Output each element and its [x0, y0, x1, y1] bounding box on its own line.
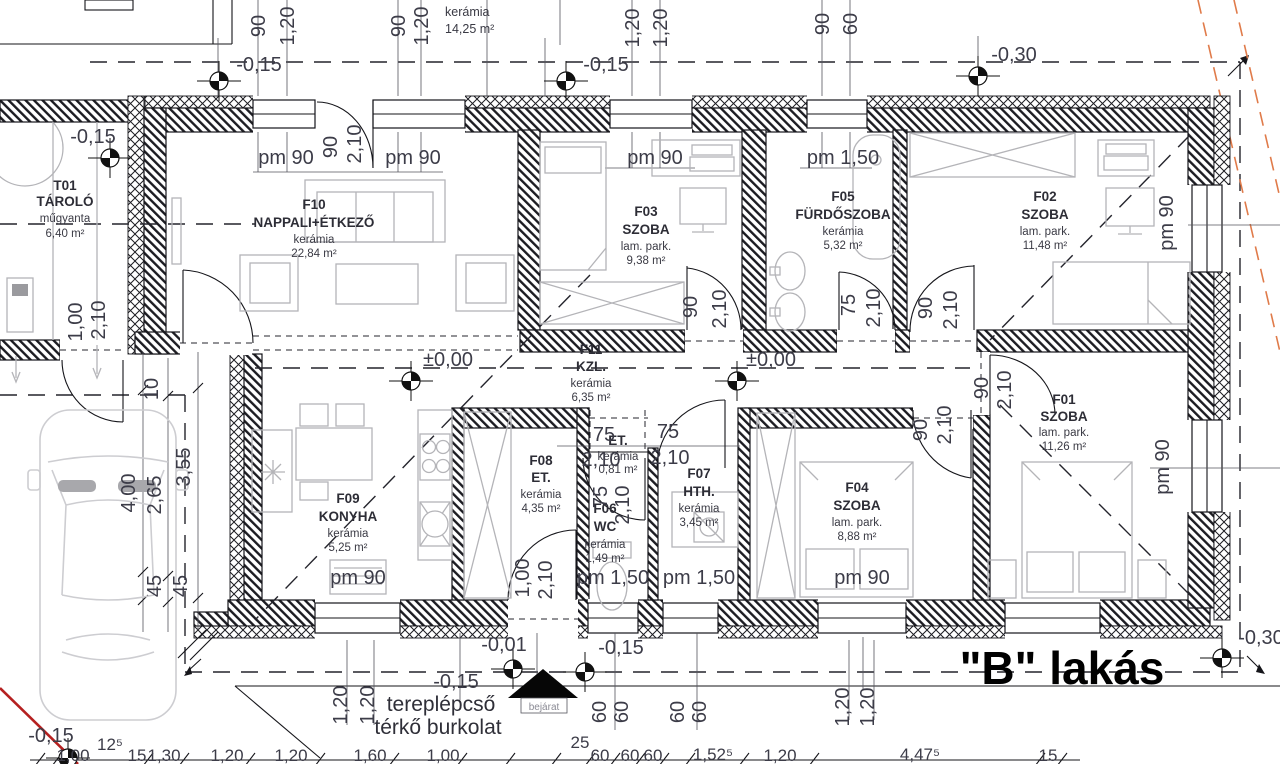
dimension-value: 60: [689, 701, 711, 723]
room-id: F01: [1052, 392, 1076, 407]
window-living-left: [253, 100, 315, 128]
dimension-value: 60: [840, 13, 862, 35]
door-taroló: [62, 360, 123, 422]
room-id: F10: [302, 197, 325, 212]
dimension-value: 1,20: [832, 688, 854, 727]
sill-label: pm 1,50: [807, 147, 879, 169]
door-height: 2,10: [994, 371, 1016, 410]
chain-value: 4,47⁵: [900, 745, 940, 764]
room-area: 11,48 m²: [1023, 240, 1068, 252]
window-living-right: [373, 100, 465, 128]
sill-label: pm 1,50: [577, 567, 649, 589]
door-width: 1,00: [65, 303, 87, 342]
room-name: NAPPALI+ÉTKEZŐ: [254, 215, 375, 230]
bed-f03: [540, 142, 606, 270]
bottom-dimension-chain: 1,00 12⁵ 15 1,30 1,20 1,20 1,60 1,00 25 …: [56, 733, 1057, 764]
room-area: 3,45 m²: [680, 517, 719, 529]
room-name: SZOBA: [622, 222, 670, 237]
room-id: F03: [634, 204, 658, 219]
room-label-f01: F01 SZOBA lam. park. 11,26 m²: [1039, 392, 1090, 453]
room-material: lam. park.: [621, 241, 672, 253]
room-area: 9,38 m²: [627, 255, 666, 267]
dimension-value: 90: [248, 15, 270, 37]
dimension-value: 90: [812, 13, 834, 35]
sill-label: pm 90: [330, 567, 386, 589]
dimension-value: 45: [144, 575, 166, 597]
desk-f02: [1098, 140, 1154, 234]
door-width: 75: [590, 486, 612, 508]
window-wc: [588, 603, 638, 633]
room-label-f08: F08 ET. kerámia 4,35 m²: [521, 453, 563, 515]
dimension-value: 45: [170, 575, 192, 597]
room-material: lam. park.: [832, 517, 883, 529]
room-material: lam. park.: [1039, 427, 1090, 439]
door-height: 2,10: [344, 125, 366, 164]
room-area: 1,49 m²: [586, 553, 625, 565]
room-label-f03: F03 SZOBA lam. park. 9,38 m²: [621, 204, 672, 267]
dimension-value: 10: [141, 378, 163, 400]
door-height: 2,10: [863, 289, 885, 328]
chain-value: 1,00: [56, 746, 89, 764]
sill-label: pm 90: [1152, 439, 1174, 495]
dimension-value: 1,20: [330, 686, 352, 725]
chain-value: 1,30: [147, 746, 180, 764]
room-area: 6,40 m²: [46, 228, 85, 240]
door-height: 2,10: [535, 561, 557, 600]
door-width: 75: [593, 424, 615, 446]
chain-value: 1,60: [353, 746, 386, 764]
room-material: kerámia: [445, 5, 490, 19]
room-area: 14,25 m²: [445, 22, 494, 36]
room-id: F07: [687, 466, 710, 481]
window-f03: [610, 100, 692, 128]
chain-value: 60: [644, 746, 663, 764]
room-label-f05: F05 FÜRDŐSZOBA kerámia 5,32 m²: [795, 189, 890, 252]
room-label-t01: T01 TÁROLÓ műgyanta 6,40 m²: [37, 178, 94, 240]
sill-label: pm 90: [258, 147, 314, 169]
room-material: kerámia: [823, 226, 865, 238]
level-value: -0,01: [481, 634, 527, 656]
room-id: F04: [845, 480, 869, 495]
chain-value: 12⁵: [97, 735, 123, 754]
room-material: kerámia: [679, 503, 721, 515]
room-name: FÜRDŐSZOBA: [795, 207, 890, 222]
door-width: 75: [657, 421, 679, 443]
room-material: kerámia: [521, 489, 563, 501]
bed-f02: [1053, 262, 1190, 324]
room-material: kerámia: [585, 539, 627, 551]
door-width: 1,00: [512, 559, 534, 598]
dimension-value: 1,20: [622, 9, 644, 48]
top-dimensions: 90 1,20 90 1,20 1,20 1,20 90 60: [248, 7, 862, 48]
chain-value: 1,20: [763, 746, 796, 764]
room-label-f07: F07 HTH. kerámia 3,45 m²: [679, 466, 721, 529]
terrain-note-line1: tereplépcső: [387, 693, 496, 716]
door-height: 2,10: [582, 449, 621, 471]
level-value: ±0,00: [746, 349, 796, 371]
annotations: tereplépcső térkő burkolat "B" lakás: [374, 642, 1164, 739]
door-width: 90: [910, 419, 932, 441]
level-value: -0,30: [991, 44, 1037, 66]
floor-plan-canvas: bejárat T01 TÁROLÓ műgyanta 6,40 m² F10 …: [0, 0, 1280, 764]
sill-label: pm 90: [1156, 195, 1178, 251]
dimension-value: 60: [589, 701, 611, 723]
window-f02-right: [1192, 185, 1222, 272]
door-width: 90: [320, 136, 342, 158]
room-area: 5,32 m²: [824, 240, 863, 252]
level-value: -0,15: [598, 637, 644, 659]
door-width: 90: [915, 297, 937, 319]
level-value: -0,15: [236, 54, 282, 76]
dimension-value: 1,20: [857, 688, 879, 727]
room-label-f04: F04 SZOBA lam. park. 8,88 m²: [832, 480, 883, 543]
room-name: TÁROLÓ: [37, 194, 94, 209]
level-value: -0,15: [70, 126, 116, 148]
room-area: 4,35 m²: [522, 503, 561, 515]
dimension-value: 3,55: [173, 448, 195, 487]
level-value: -0,15: [433, 671, 479, 693]
room-material: műgyanta: [40, 213, 91, 225]
chain-value: 60: [591, 746, 610, 764]
room-area: 11,26 m²: [1042, 441, 1087, 453]
room-material: lam. park.: [1020, 226, 1071, 238]
room-area: 22,84 m²: [291, 248, 337, 260]
sill-label: pm 90: [834, 567, 890, 589]
door-height: 2,10: [709, 290, 731, 329]
bed-f01: [988, 462, 1166, 598]
dimension-value: 90: [388, 15, 410, 37]
room-id: F02: [1033, 189, 1056, 204]
dimension-value: 2,65: [144, 476, 166, 515]
chain-value: 25: [571, 733, 590, 752]
room-id: F11: [580, 342, 603, 357]
entrance-label: bejárat: [529, 702, 560, 713]
sill-label: pm 1,50: [663, 567, 735, 589]
dimension-value: 1,20: [650, 9, 672, 48]
dimension-value: 60: [667, 701, 689, 723]
room-id: F05: [831, 189, 855, 204]
room-label-f02: F02 SZOBA lam. park. 11,48 m²: [1020, 189, 1071, 252]
room-id: T01: [53, 178, 77, 193]
room-material: kerámia: [328, 528, 370, 540]
door-width: 90: [680, 296, 702, 318]
sofa-set: [172, 180, 514, 311]
window-f05: [807, 100, 867, 128]
chain-value: 1,00: [426, 746, 459, 764]
dimension-value: 1,20: [277, 7, 299, 46]
window-f01: [1005, 603, 1100, 633]
level-value: ±0,00: [423, 349, 473, 371]
chain-value: 1,20: [210, 746, 243, 764]
door-height: 2,10: [934, 406, 956, 445]
chain-value: 15: [128, 746, 147, 764]
level-value: -0,30: [1238, 627, 1280, 649]
room-area: 8,88 m²: [838, 531, 877, 543]
sill-label: pm 90: [627, 147, 683, 169]
room-id: F08: [529, 453, 553, 468]
room-name: ET.: [531, 470, 551, 485]
room-name: KZL.: [576, 359, 606, 374]
door-width: 75: [838, 294, 860, 316]
dimension-value: 60: [611, 701, 633, 723]
room-area: 5,25 m²: [329, 542, 368, 554]
dimension-value: 4,00: [118, 474, 140, 513]
wall-kitchen-left: [244, 354, 262, 600]
room-name: SZOBA: [1040, 409, 1088, 424]
chain-value: 15: [1039, 746, 1058, 764]
window-hth: [663, 603, 718, 633]
door-height: 2,10: [940, 291, 962, 330]
sill-label: pm 90: [385, 147, 441, 169]
wall-taroló-bottom: [0, 340, 60, 360]
room-name: KONYHA: [319, 509, 378, 524]
chain-value: 1,20: [274, 746, 307, 764]
door-height: 2,10: [612, 486, 634, 525]
chain-value: 1,52⁵: [693, 745, 733, 764]
level-value: -0,15: [28, 725, 74, 747]
room-material: kerámia: [294, 234, 336, 246]
room-name: SZOBA: [833, 498, 881, 513]
chain-value: 60: [621, 746, 640, 764]
wall-main-left: [144, 108, 166, 354]
room-area: 6,35 m²: [572, 392, 611, 404]
wall-taroló-top: [0, 100, 135, 122]
door-height: 2,10: [88, 301, 110, 340]
window-kitchen: [315, 603, 400, 633]
apartment-label: "B" lakás: [960, 642, 1165, 694]
dining-set: [296, 404, 372, 500]
door-height: 2,10: [651, 447, 690, 469]
terrain-note-line2: térkő burkolat: [374, 716, 501, 739]
room-name: SZOBA: [1021, 207, 1069, 222]
room-material: kerámia: [571, 378, 613, 390]
car-drawing: [28, 410, 188, 720]
floor-plan-page: bejárat T01 TÁROLÓ műgyanta 6,40 m² F10 …: [0, 0, 1280, 764]
room-name: HTH.: [683, 484, 715, 499]
wall-main-right: [1188, 108, 1214, 608]
dimension-value: 1,20: [411, 7, 433, 46]
room-id: F09: [336, 491, 359, 506]
door-width: 90: [971, 377, 993, 399]
level-value: -0,15: [583, 54, 629, 76]
window-f01-right: [1192, 420, 1222, 512]
window-f04: [818, 603, 906, 633]
